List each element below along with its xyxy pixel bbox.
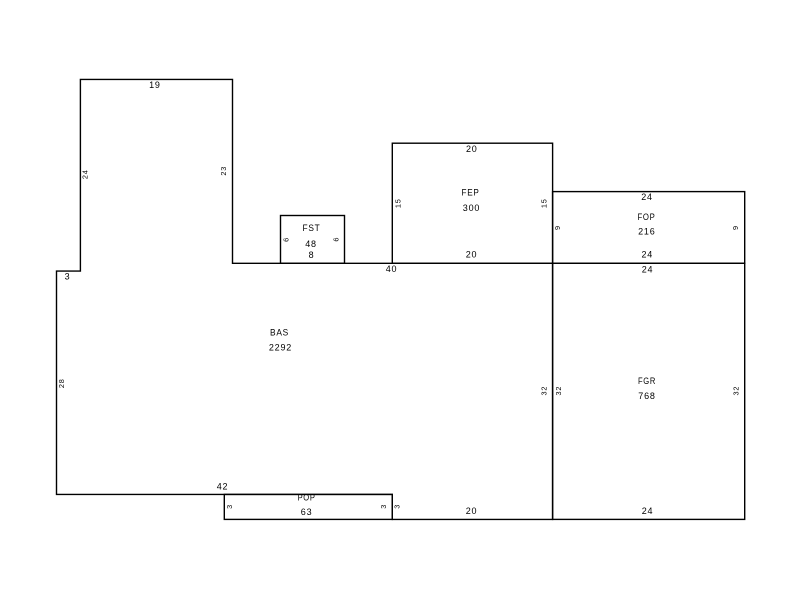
svg-text:20: 20	[466, 144, 478, 154]
svg-text:42: 42	[217, 482, 229, 492]
svg-text:2292: 2292	[269, 343, 292, 353]
svg-text:19: 19	[149, 80, 161, 90]
svg-text:3: 3	[379, 504, 388, 509]
svg-text:FST: FST	[303, 223, 321, 233]
svg-text:24: 24	[642, 265, 654, 275]
svg-text:23: 23	[219, 166, 228, 176]
svg-text:768: 768	[638, 391, 655, 401]
svg-text:6: 6	[282, 237, 291, 242]
svg-text:8: 8	[309, 250, 315, 260]
svg-text:9: 9	[731, 225, 740, 230]
svg-text:20: 20	[466, 506, 478, 516]
svg-text:28: 28	[57, 378, 66, 388]
svg-text:15: 15	[394, 198, 403, 208]
svg-text:3: 3	[65, 272, 71, 282]
svg-text:63: 63	[301, 507, 313, 517]
svg-text:15: 15	[540, 198, 549, 208]
svg-text:216: 216	[638, 227, 655, 237]
svg-text:FGR: FGR	[638, 376, 656, 386]
svg-text:24: 24	[641, 250, 653, 260]
svg-text:3: 3	[393, 504, 402, 509]
svg-text:6: 6	[331, 237, 340, 242]
svg-text:3: 3	[225, 504, 234, 509]
svg-text:9: 9	[553, 225, 562, 230]
svg-text:24: 24	[81, 169, 90, 179]
svg-text:24: 24	[642, 506, 654, 516]
svg-text:FEP: FEP	[462, 188, 480, 198]
svg-text:32: 32	[732, 386, 741, 396]
svg-text:32: 32	[539, 386, 548, 396]
svg-text:48: 48	[305, 239, 317, 249]
svg-text:FOP: FOP	[638, 212, 656, 222]
svg-text:24: 24	[641, 192, 653, 202]
svg-text:40: 40	[386, 264, 398, 274]
svg-text:300: 300	[463, 203, 480, 213]
svg-text:POP: POP	[298, 493, 316, 503]
svg-text:20: 20	[466, 250, 478, 260]
svg-text:32: 32	[554, 386, 563, 396]
svg-text:BAS: BAS	[270, 328, 289, 338]
